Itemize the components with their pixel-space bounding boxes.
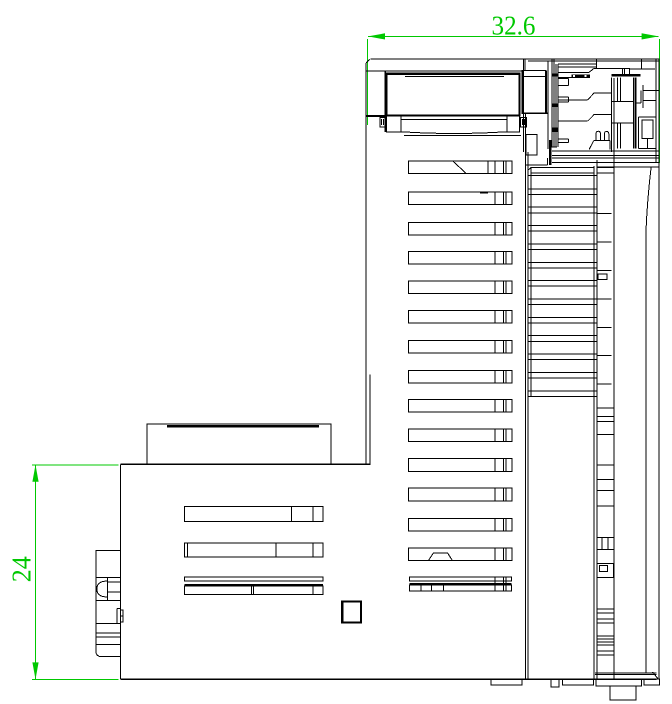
svg-text:32.6: 32.6: [492, 11, 536, 41]
svg-text:24: 24: [7, 556, 37, 582]
